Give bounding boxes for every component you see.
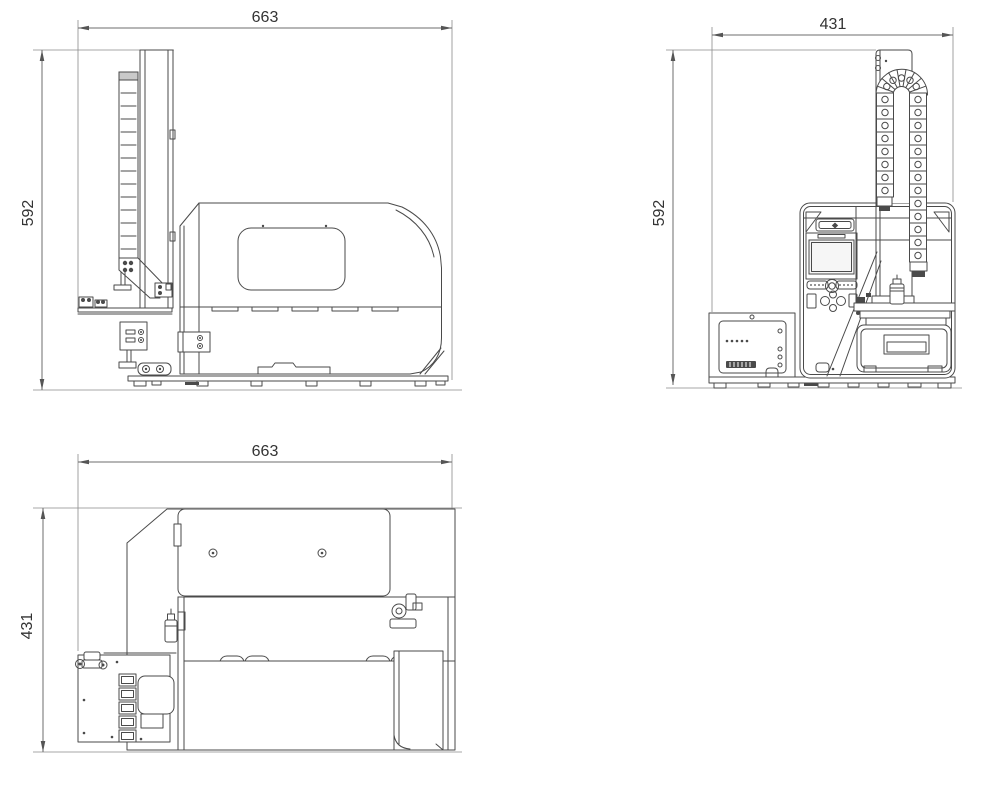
- front-width-dim-label: 431: [820, 16, 847, 33]
- top-cover: [178, 509, 390, 596]
- side-width-dim-label: 663: [252, 9, 279, 26]
- side-height-dim-label: 592: [20, 200, 37, 227]
- top-view-machine: [76, 509, 456, 750]
- energy-chain: [119, 72, 138, 258]
- base-feet: [134, 381, 445, 386]
- cover-hinge: [174, 524, 181, 546]
- drawing-page: 663 592: [0, 0, 1000, 793]
- base-plate: [128, 376, 448, 381]
- cylinder-top: [165, 620, 177, 642]
- applicator-box: [857, 325, 951, 372]
- technical-drawing: 663 592: [0, 0, 1000, 793]
- pneumatic-cylinder: [890, 284, 904, 304]
- side-view: 663 592: [20, 9, 462, 390]
- display-screen: [809, 240, 854, 274]
- front-view: 431 592: [651, 16, 962, 388]
- side-view-machine: [78, 50, 448, 386]
- front-height-dim-label: 592: [651, 200, 668, 227]
- side-cover-panel: [394, 651, 443, 750]
- viewing-window: [238, 228, 345, 290]
- applicator-pad: [138, 676, 174, 714]
- base-feet: [714, 383, 951, 388]
- top-height-dim-label: 431: [19, 613, 36, 640]
- front-view-machine: [709, 50, 955, 388]
- power-supply-unit: [709, 313, 795, 377]
- top-view: 663 431: [19, 443, 462, 752]
- top-width-dim-label: 663: [252, 443, 279, 460]
